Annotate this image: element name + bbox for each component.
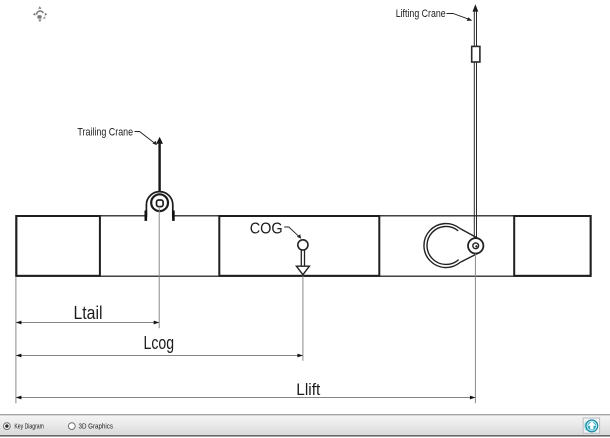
svg-text:COG: COG xyxy=(250,220,283,237)
svg-text:Lcog: Lcog xyxy=(144,332,175,353)
svg-text:Llift: Llift xyxy=(296,382,321,400)
svg-text:3D Graphics: 3D Graphics xyxy=(79,422,114,431)
svg-text:Key Diagram: Key Diagram xyxy=(14,422,44,431)
svg-text:Trailing Crane: Trailing Crane xyxy=(77,126,133,138)
svg-text:Ltail: Ltail xyxy=(74,302,103,323)
svg-text:Lifting Crane: Lifting Crane xyxy=(396,8,446,20)
